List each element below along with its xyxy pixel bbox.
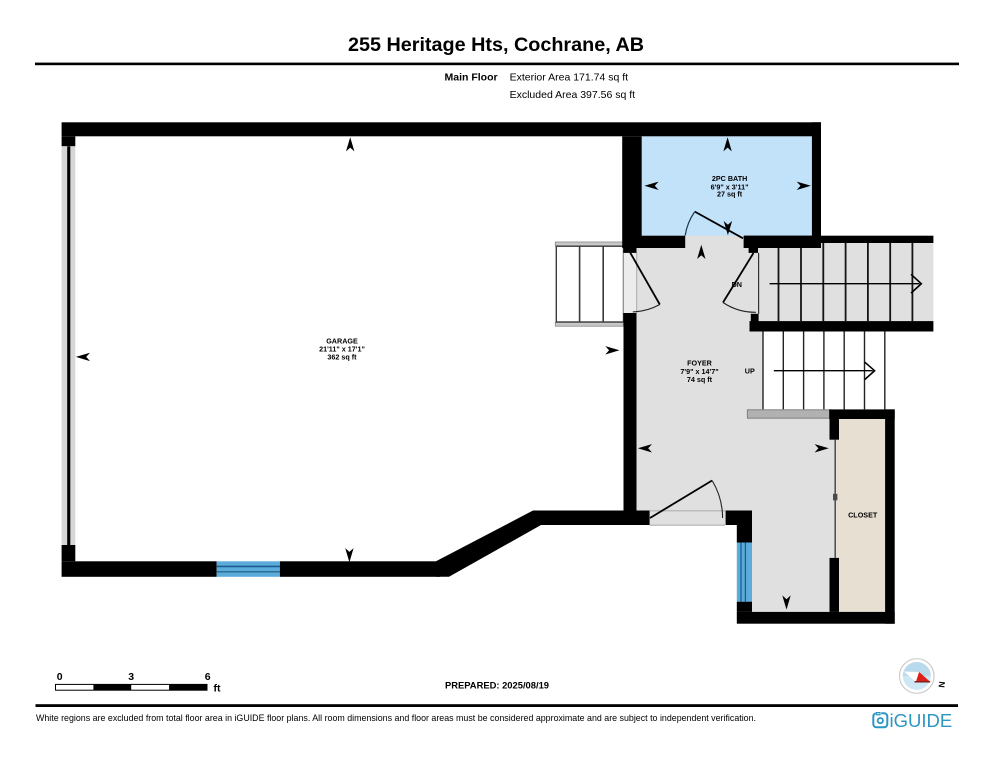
svg-text:N: N (937, 681, 948, 688)
svg-text:Exterior Area 171.74 sq ft: Exterior Area 171.74 sq ft (510, 72, 629, 84)
svg-text:UP: UP (745, 367, 755, 376)
svg-text:Excluded Area 397.56 sq ft: Excluded Area 397.56 sq ft (510, 89, 636, 101)
svg-text:74 sq ft: 74 sq ft (687, 375, 713, 384)
svg-text:DN: DN (732, 280, 742, 289)
svg-text:0: 0 (57, 671, 63, 683)
svg-text:ft: ft (214, 683, 221, 695)
svg-text:iGUIDE: iGUIDE (890, 710, 953, 731)
svg-text:362 sq ft: 362 sq ft (327, 352, 357, 361)
svg-text:3: 3 (128, 671, 134, 683)
svg-text:Main Floor: Main Floor (445, 72, 498, 84)
svg-text:PREPARED: 2025/08/19: PREPARED: 2025/08/19 (445, 680, 549, 691)
svg-text:White regions are excluded fro: White regions are excluded from total fl… (36, 713, 756, 724)
svg-text:27 sq ft: 27 sq ft (717, 190, 743, 199)
svg-text:CLOSET: CLOSET (848, 511, 878, 520)
svg-text:6: 6 (205, 671, 211, 683)
svg-text:255 Heritage Hts, Cochrane, AB: 255 Heritage Hts, Cochrane, AB (348, 34, 644, 56)
